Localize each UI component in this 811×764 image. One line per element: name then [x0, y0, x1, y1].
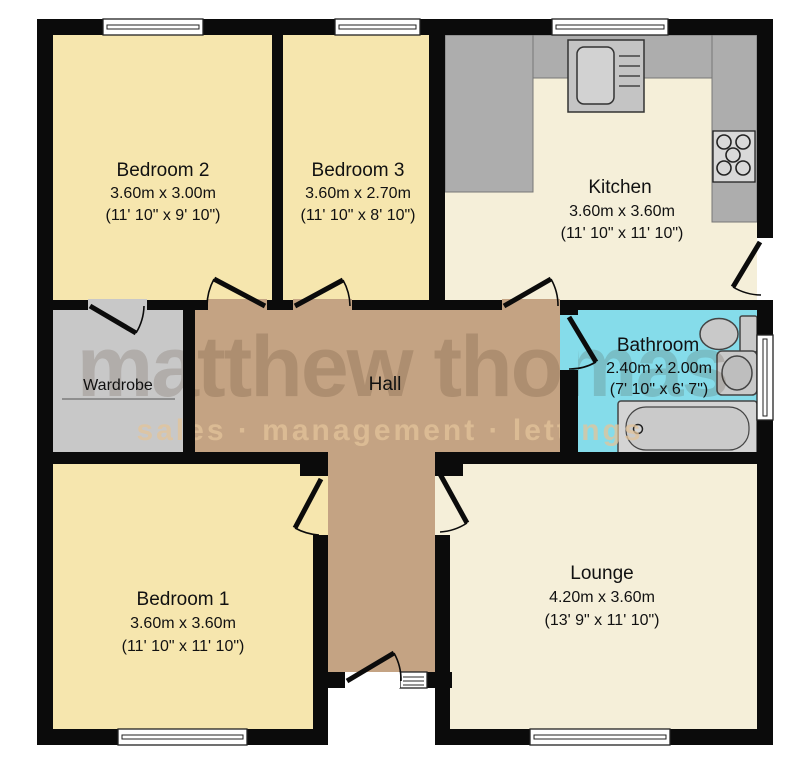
- bedroom1-name: Bedroom 1: [137, 589, 230, 610]
- bedroom3-window: [335, 19, 420, 35]
- hall-extension-floor: [328, 452, 435, 672]
- wall-bedroom2-bedroom3: [272, 35, 283, 310]
- wall-wardrobe-hall: [183, 300, 195, 452]
- kitchen-imperial: (11' 10" x 11' 10"): [561, 225, 684, 242]
- wall-mid-upper: [53, 300, 757, 310]
- bathroom-imperial: (7' 10" x 6' 7"): [610, 381, 708, 398]
- bedroom2-name: Bedroom 2: [117, 160, 210, 181]
- floorplan-svg: matthew thomas sales · management · lett…: [0, 0, 811, 764]
- bedroom1-metric: 3.60m x 3.60m: [130, 615, 236, 632]
- wall-frontdoor-stub-left: [313, 672, 345, 688]
- kitchen-counter-left: [445, 35, 533, 192]
- floorplan-page: matthew thomas sales · management · lett…: [0, 0, 811, 764]
- bedroom1-imperial: (11' 10" x 11' 10"): [122, 638, 245, 655]
- bedroom2-window: [103, 19, 203, 35]
- bedroom2-imperial: (11' 10" x 9' 10"): [105, 207, 220, 224]
- wall-exterior-left: [37, 19, 53, 745]
- frontdoor-sidelight: [400, 672, 427, 688]
- bedroom2-metric: 3.60m x 3.00m: [110, 185, 216, 202]
- sink-bowl: [577, 47, 614, 104]
- kitchen-counter-right: [712, 35, 757, 222]
- bathroom-metric: 2.40m x 2.00m: [606, 360, 712, 377]
- lounge-imperial: (13' 9" x 11' 10"): [544, 612, 659, 629]
- toilet-cistern: [740, 316, 757, 352]
- jamb-lounge-door: [435, 464, 463, 476]
- bathroom-window: [757, 335, 773, 420]
- wardrobe-name: Wardrobe: [83, 377, 153, 394]
- wall-bedroom3-kitchen: [429, 35, 445, 310]
- bedroom3-name: Bedroom 3: [312, 160, 405, 181]
- bedroom1-window: [118, 729, 247, 745]
- lounge-name: Lounge: [570, 563, 633, 584]
- bathroom-name: Bathroom: [617, 335, 699, 356]
- wall-mid-lower-left: [53, 452, 313, 464]
- lounge-window: [530, 729, 670, 745]
- kitchen-window: [552, 19, 668, 35]
- hall-name: Hall: [369, 374, 402, 395]
- kitchen-metric: 3.60m x 3.60m: [569, 203, 675, 220]
- porch-recess: [328, 688, 435, 745]
- bedroom3-imperial: (11' 10" x 8' 10"): [300, 207, 415, 224]
- bedroom3-metric: 3.60m x 2.70m: [305, 185, 411, 202]
- lounge-metric: 4.20m x 3.60m: [549, 589, 655, 606]
- jamb-bedroom1-door: [300, 464, 328, 476]
- kitchen-name: Kitchen: [588, 177, 651, 198]
- wall-mid-lower-right: [450, 452, 757, 464]
